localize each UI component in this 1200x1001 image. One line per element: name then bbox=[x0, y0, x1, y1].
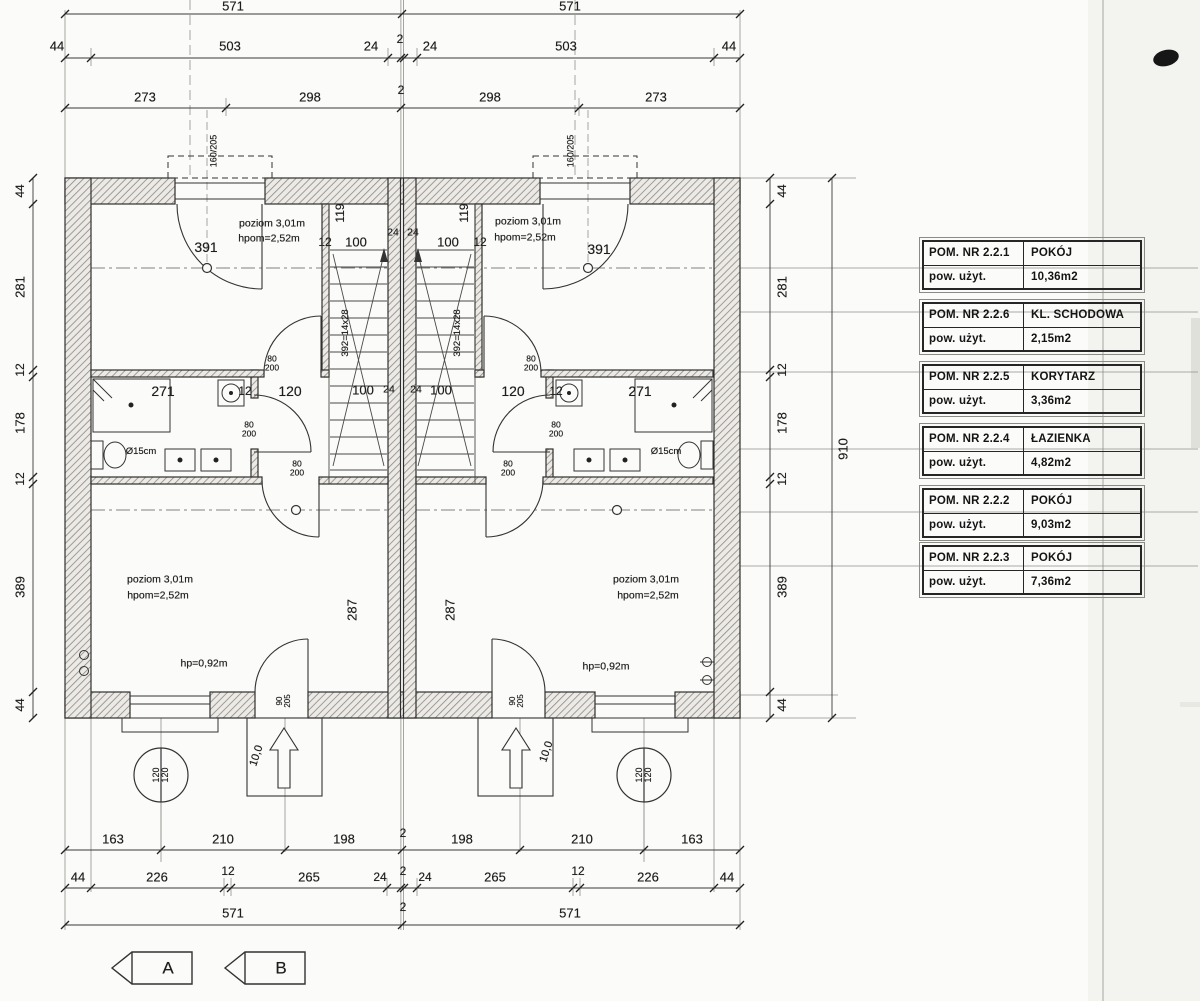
legend-row: POM. NR 2.2.6KL. SCHODOWA bbox=[924, 304, 1140, 328]
legend-row: POM. NR 2.2.4ŁAZIENKA bbox=[924, 428, 1140, 452]
entry-porches bbox=[247, 718, 553, 796]
legend-row: pow. użyt.9,03m2 bbox=[924, 514, 1140, 537]
legend-area-label: pow. użyt. bbox=[924, 390, 1024, 413]
legend-area-label: pow. użyt. bbox=[924, 514, 1024, 537]
legend-row: POM. NR 2.2.1POKÓJ bbox=[924, 242, 1140, 266]
legend-area-label: pow. użyt. bbox=[924, 571, 1024, 594]
legend-room-number: POM. NR 2.2.4 bbox=[924, 428, 1024, 451]
legend-room-number: POM. NR 2.2.6 bbox=[924, 304, 1024, 327]
section-markers bbox=[112, 952, 305, 984]
legend-room-name: POKÓJ bbox=[1024, 242, 1140, 265]
legend-table: POM. NR 2.2.3POKÓJpow. użyt.7,36m2 bbox=[922, 545, 1142, 595]
legend-area-value: 9,03m2 bbox=[1024, 514, 1140, 537]
legend-room-name: POKÓJ bbox=[1024, 490, 1140, 513]
legend-area-label: pow. użyt. bbox=[924, 328, 1024, 351]
doors bbox=[177, 204, 628, 692]
legend-area-value: 7,36m2 bbox=[1024, 571, 1140, 594]
legend-area-value: 10,36m2 bbox=[1024, 266, 1140, 289]
legend-room-name: KL. SCHODOWA bbox=[1024, 304, 1140, 327]
legend-area-label: pow. użyt. bbox=[924, 266, 1024, 289]
legend-table: POM. NR 2.2.5KORYTARZpow. użyt.3,36m2 bbox=[922, 364, 1142, 414]
axis-markers bbox=[134, 264, 671, 803]
stairs bbox=[329, 204, 475, 484]
legend-table: POM. NR 2.2.4ŁAZIENKApow. użyt.4,82m2 bbox=[922, 426, 1142, 476]
legend-row: pow. użyt.7,36m2 bbox=[924, 571, 1140, 594]
legend-table: POM. NR 2.2.6KL. SCHODOWApow. użyt.2,15m… bbox=[922, 302, 1142, 352]
legend-row: POM. NR 2.2.3POKÓJ bbox=[924, 547, 1140, 571]
legend-area-label: pow. użyt. bbox=[924, 452, 1024, 475]
legend-row: pow. użyt.3,36m2 bbox=[924, 390, 1140, 413]
legend-room-number: POM. NR 2.2.3 bbox=[924, 547, 1024, 570]
legend-row: POM. NR 2.2.5KORYTARZ bbox=[924, 366, 1140, 390]
legend-row: pow. użyt.10,36m2 bbox=[924, 266, 1140, 289]
legend-row: pow. użyt.2,15m2 bbox=[924, 328, 1140, 351]
legend-area-value: 3,36m2 bbox=[1024, 390, 1140, 413]
legend-room-name: KORYTARZ bbox=[1024, 366, 1140, 389]
floor-plan-page: POM. NR 2.2.1POKÓJpow. użyt.10,36m2POM. … bbox=[0, 0, 1200, 1001]
legend-room-name: ŁAZIENKA bbox=[1024, 428, 1140, 451]
legend-table: POM. NR 2.2.1POKÓJpow. użyt.10,36m2 bbox=[922, 240, 1142, 290]
axis-lines bbox=[91, 268, 713, 510]
legend-area-value: 2,15m2 bbox=[1024, 328, 1140, 351]
legend-room-number: POM. NR 2.2.1 bbox=[924, 242, 1024, 265]
legend-table: POM. NR 2.2.2POKÓJpow. użyt.9,03m2 bbox=[922, 488, 1142, 538]
walls bbox=[65, 178, 740, 718]
legend-row: pow. użyt.4,82m2 bbox=[924, 452, 1140, 475]
legend-room-number: POM. NR 2.2.2 bbox=[924, 490, 1024, 513]
legend-room-number: POM. NR 2.2.5 bbox=[924, 366, 1024, 389]
legend-room-name: POKÓJ bbox=[1024, 547, 1140, 570]
legend-area-value: 4,82m2 bbox=[1024, 452, 1140, 475]
legend-row: POM. NR 2.2.2POKÓJ bbox=[924, 490, 1140, 514]
